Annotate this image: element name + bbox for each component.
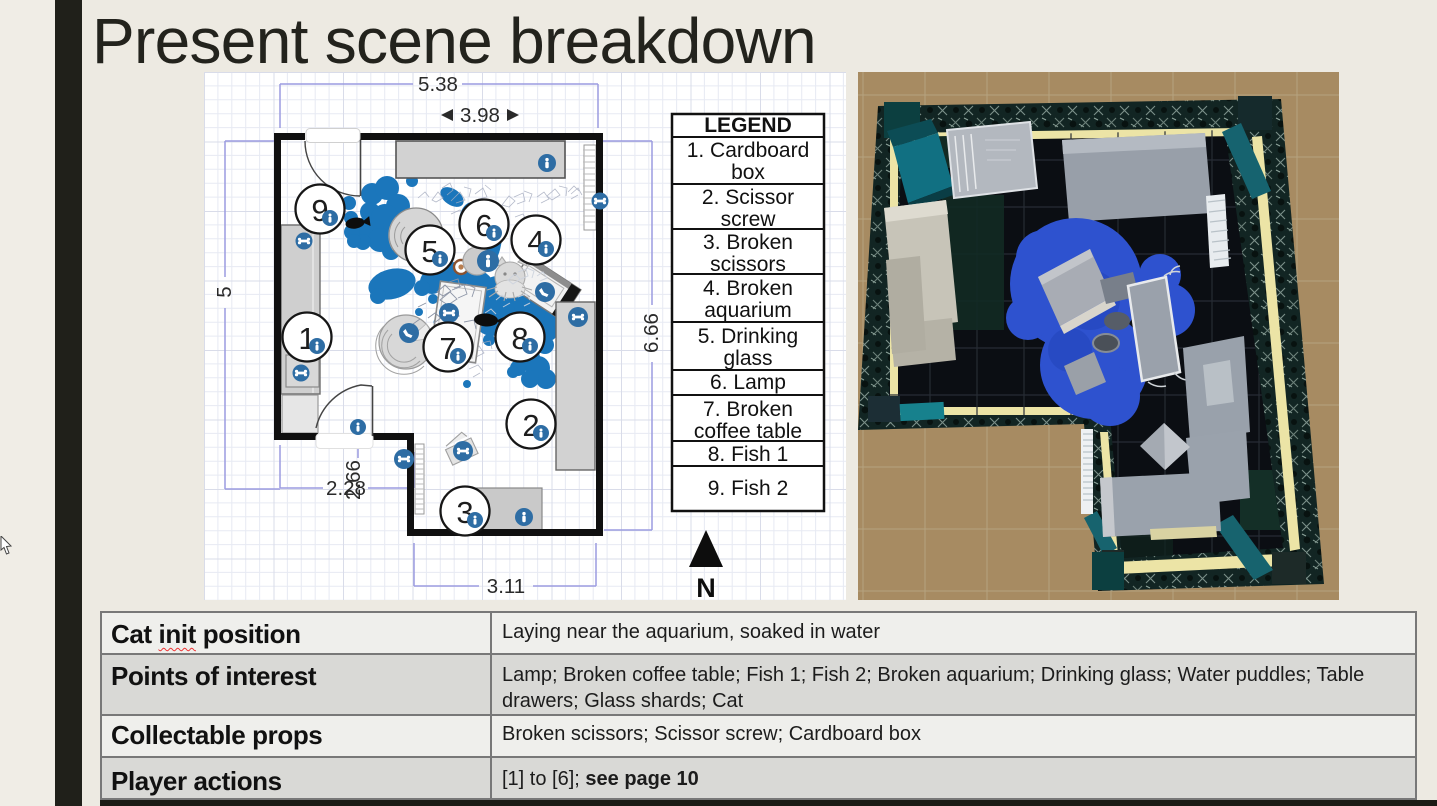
svg-text:9. Fish 2: 9. Fish 2 xyxy=(708,477,789,500)
svg-text:8. Fish 1: 8. Fish 1 xyxy=(708,443,789,466)
svg-text:7. Broken: 7. Broken xyxy=(703,398,793,421)
svg-text:5: 5 xyxy=(213,286,236,297)
svg-text:4. Broken: 4. Broken xyxy=(703,277,793,300)
svg-text:coffee table: coffee table xyxy=(694,420,802,443)
svg-text:6.66: 6.66 xyxy=(640,313,663,353)
svg-text:3.11: 3.11 xyxy=(487,575,525,598)
svg-text:LEGEND: LEGEND xyxy=(704,114,792,137)
svg-text:5. Drinking: 5. Drinking xyxy=(698,325,798,348)
svg-text:screw: screw xyxy=(721,208,777,231)
svg-text:2.66: 2.66 xyxy=(342,460,365,500)
svg-text:glass: glass xyxy=(723,347,772,370)
svg-text:6. Lamp: 6. Lamp xyxy=(710,371,786,394)
svg-text:1. Cardboard: 1. Cardboard xyxy=(687,139,810,162)
svg-text:aquarium: aquarium xyxy=(704,299,792,322)
svg-text:2. Scissor: 2. Scissor xyxy=(702,186,794,209)
svg-text:N: N xyxy=(696,573,716,600)
svg-text:box: box xyxy=(731,161,765,184)
svg-text:3.98: 3.98 xyxy=(460,104,500,127)
svg-text:3. Broken: 3. Broken xyxy=(703,231,793,254)
svg-text:5.38: 5.38 xyxy=(418,73,458,96)
svg-text:scissors: scissors xyxy=(710,253,786,276)
